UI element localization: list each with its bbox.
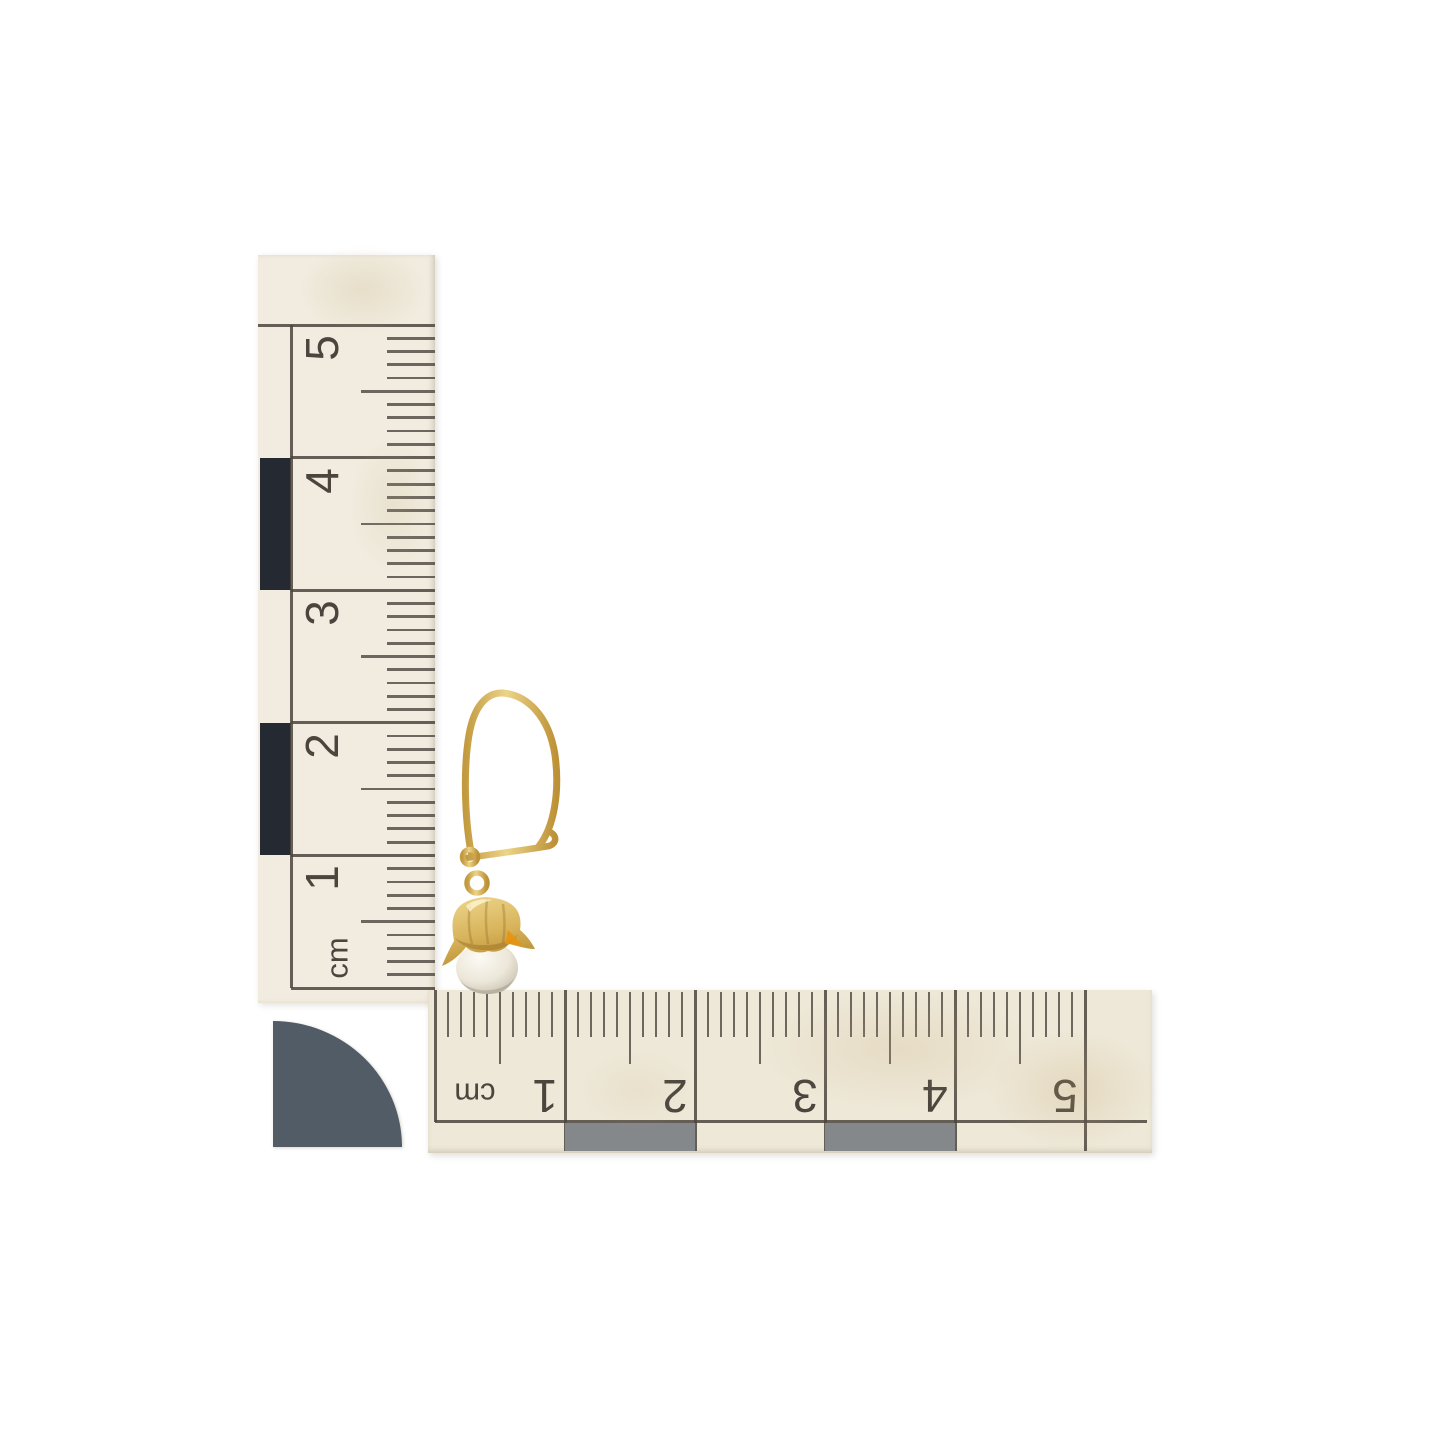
tick bbox=[387, 615, 435, 618]
tick bbox=[387, 416, 435, 419]
tick bbox=[387, 337, 435, 340]
tick bbox=[707, 992, 710, 1037]
checker-block bbox=[260, 723, 291, 856]
paper-stain bbox=[988, 1030, 1158, 1150]
tick bbox=[361, 655, 435, 658]
quarter-circle-corner-marker bbox=[273, 1021, 402, 1147]
tick bbox=[387, 629, 435, 632]
paper-stain bbox=[298, 245, 428, 335]
tick bbox=[361, 390, 435, 393]
ruler-number: 4 bbox=[299, 468, 345, 494]
kidney-wire bbox=[465, 693, 556, 852]
tick bbox=[387, 430, 435, 433]
tick bbox=[668, 992, 671, 1037]
tick bbox=[655, 992, 658, 1037]
ruler-number: 5 bbox=[299, 335, 345, 361]
tick bbox=[387, 403, 435, 406]
tick bbox=[387, 602, 435, 605]
ruler-line bbox=[291, 854, 435, 857]
tick bbox=[616, 992, 619, 1037]
checker-block bbox=[260, 325, 291, 458]
tick bbox=[387, 350, 435, 353]
ruler-line bbox=[290, 325, 293, 988]
pearl-drop-earring bbox=[425, 672, 595, 1017]
tick bbox=[642, 992, 645, 1037]
ruler-unit-label: cm bbox=[454, 1079, 495, 1110]
tick bbox=[720, 992, 723, 1037]
ruler-unit-label: cm bbox=[322, 937, 353, 978]
product-photo: 54321cm 12345cm bbox=[0, 0, 1445, 1445]
paper-stain bbox=[348, 435, 438, 575]
checker-block bbox=[825, 1123, 955, 1151]
tick bbox=[603, 992, 606, 1037]
tick bbox=[1032, 992, 1035, 1037]
checker-block bbox=[260, 590, 291, 723]
ruler-number: 3 bbox=[299, 600, 345, 626]
ruler-number: 1 bbox=[299, 866, 345, 892]
ruler-number: 2 bbox=[299, 733, 345, 759]
tick bbox=[387, 668, 435, 671]
vertical-ruler: 54321cm bbox=[258, 255, 435, 1003]
tick bbox=[387, 377, 435, 380]
checker-block bbox=[260, 458, 291, 591]
tick bbox=[681, 992, 684, 1037]
tick bbox=[387, 576, 435, 579]
tick bbox=[387, 363, 435, 366]
ruler-line bbox=[291, 589, 435, 592]
tick bbox=[1045, 992, 1048, 1037]
tick bbox=[361, 788, 435, 791]
checker-block bbox=[260, 855, 291, 988]
paper-stain bbox=[578, 1050, 698, 1130]
tick bbox=[361, 920, 435, 923]
tick bbox=[733, 992, 736, 1037]
ruler-line bbox=[291, 721, 435, 724]
tick bbox=[746, 992, 749, 1037]
ruler-number: 1 bbox=[532, 1073, 558, 1119]
jump-ring bbox=[467, 873, 487, 893]
tick bbox=[387, 642, 435, 645]
ruler-line bbox=[291, 987, 435, 990]
